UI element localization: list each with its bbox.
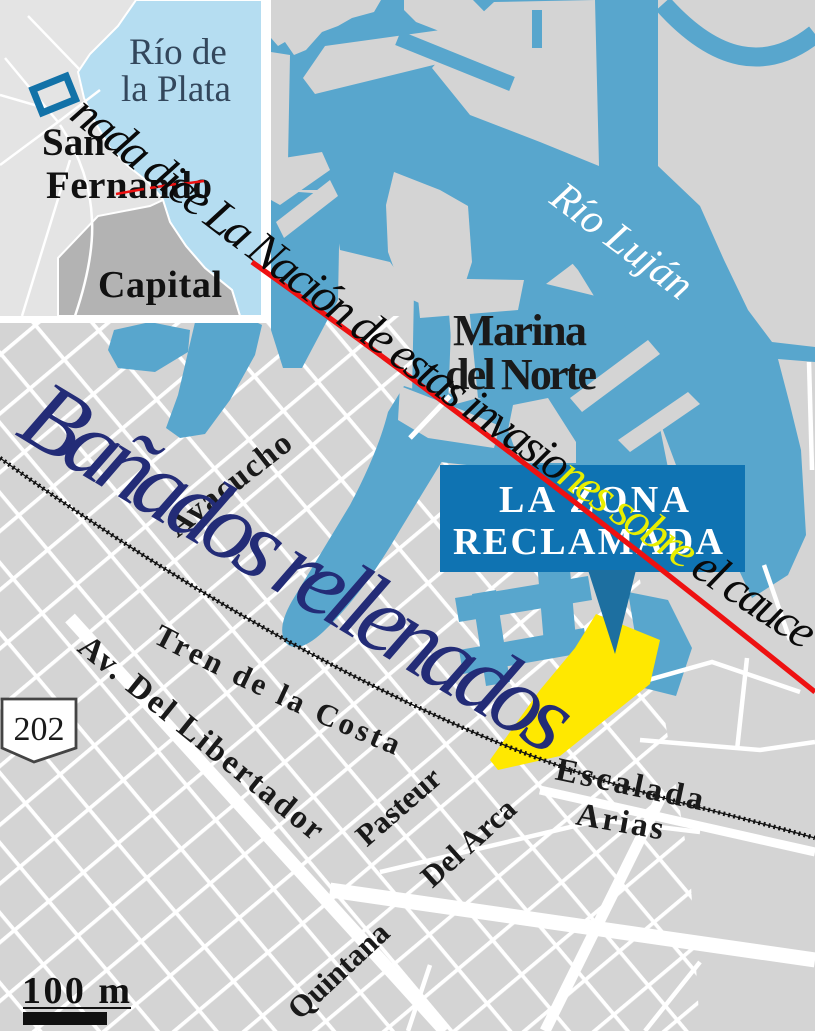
svg-text:la Plata: la Plata [121,69,231,110]
svg-text:100 m: 100 m [22,970,130,1012]
svg-text:Capital: Capital [98,264,222,306]
svg-text:Marina: Marina [453,306,587,355]
svg-text:Río de: Río de [129,32,227,73]
svg-text:202: 202 [14,711,65,748]
